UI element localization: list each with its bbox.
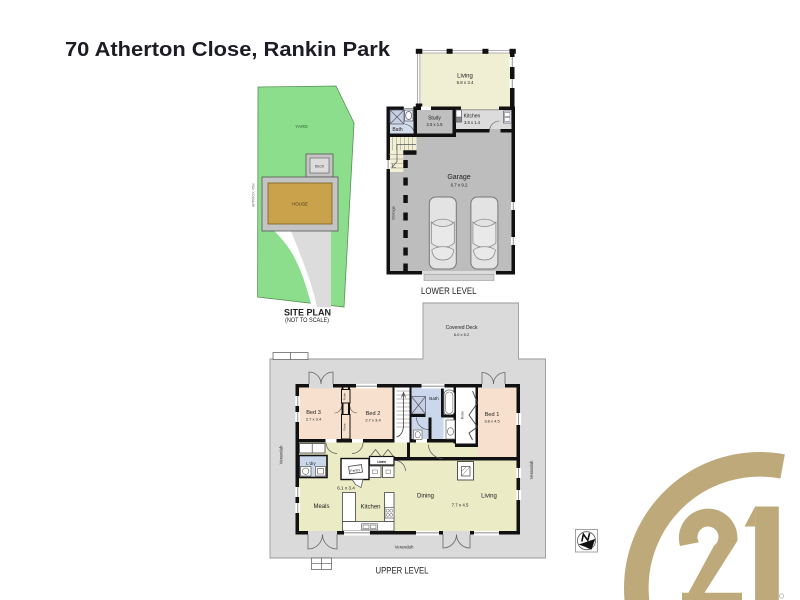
svg-text:APPROX 45m: APPROX 45m — [252, 183, 256, 207]
svg-text:6.0 x 5.2: 6.0 x 5.2 — [454, 332, 470, 337]
svg-text:Linen: Linen — [377, 460, 385, 464]
svg-text:(NOT TO SCALE): (NOT TO SCALE) — [285, 317, 329, 324]
svg-text:Living: Living — [457, 74, 473, 80]
svg-text:Bed 1: Bed 1 — [485, 412, 500, 418]
svg-text:Study: Study — [428, 116, 441, 122]
svg-text:2.5 x 1.5: 2.5 x 1.5 — [426, 122, 443, 127]
svg-text:Bath: Bath — [429, 396, 439, 401]
svg-text:Kitchen: Kitchen — [360, 505, 380, 511]
svg-text:2.7 x 3.4: 2.7 x 3.4 — [306, 417, 322, 422]
svg-text:Robe: Robe — [343, 423, 347, 431]
svg-text:YARD: YARD — [295, 124, 308, 129]
svg-text:Bed 3: Bed 3 — [306, 410, 321, 416]
svg-text:Covered Deck: Covered Deck — [446, 325, 478, 331]
svg-text:70 Atherton Close, Rankin Park: 70 Atherton Close, Rankin Park — [65, 38, 391, 61]
svg-text:Dining: Dining — [417, 494, 434, 500]
svg-text:Verandah: Verandah — [395, 545, 414, 550]
svg-text:UPPER LEVEL: UPPER LEVEL — [376, 566, 429, 577]
svg-text:Bath: Bath — [392, 127, 403, 133]
svg-text:Kitchen: Kitchen — [464, 114, 481, 120]
svg-text:Garage: Garage — [447, 174, 470, 181]
svg-text:LOWER LEVEL: LOWER LEVEL — [421, 286, 477, 297]
svg-text:Verandah: Verandah — [279, 445, 284, 464]
svg-text:Living: Living — [481, 494, 497, 500]
svg-text:5.8 x 3.4: 5.8 x 3.4 — [457, 80, 474, 85]
svg-text:6.7 x 9.2: 6.7 x 9.2 — [451, 183, 468, 188]
svg-text:L'dry: L'dry — [306, 461, 316, 466]
svg-text:Meals: Meals — [313, 504, 329, 510]
svg-text:Robe: Robe — [461, 411, 465, 419]
svg-text:Robe: Robe — [343, 393, 347, 401]
svg-text:Storage: Storage — [391, 205, 396, 220]
svg-text:DECK: DECK — [315, 165, 325, 169]
svg-text:Bed 2: Bed 2 — [366, 411, 381, 417]
svg-text:3.6 x 1.4: 3.6 x 1.4 — [464, 120, 481, 125]
svg-text:2.7 x 3.4: 2.7 x 3.4 — [365, 418, 381, 423]
svg-text:3.8 x 4.5: 3.8 x 4.5 — [484, 419, 500, 424]
svg-text:HOUSE: HOUSE — [292, 202, 308, 207]
svg-text:6.1 x 3.4: 6.1 x 3.4 — [337, 486, 355, 491]
svg-text:Verandah: Verandah — [529, 460, 534, 479]
svg-text:7.7 x 4.5: 7.7 x 4.5 — [452, 503, 469, 508]
